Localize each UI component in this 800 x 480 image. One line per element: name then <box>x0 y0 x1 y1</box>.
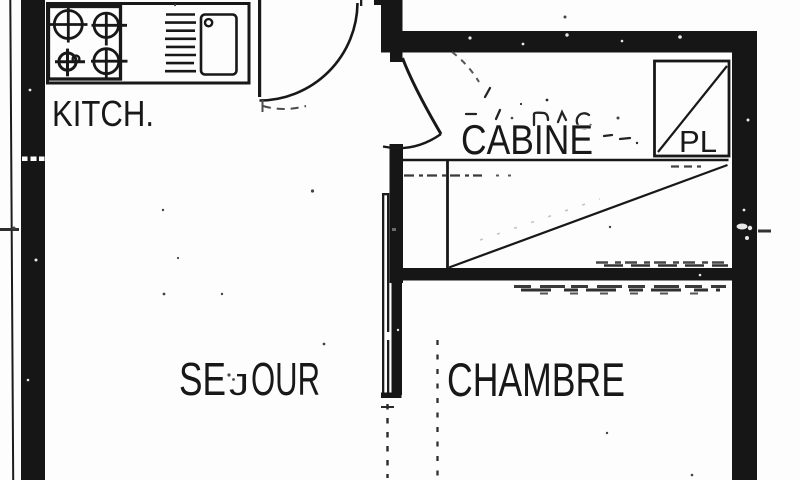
svg-text:OUR: OUR <box>251 353 320 405</box>
svg-text:J: J <box>229 367 249 402</box>
svg-text:CHAMBRE: CHAMBRE <box>447 353 625 406</box>
svg-text:PL: PL <box>679 124 717 159</box>
svg-text:SE: SE <box>179 353 226 405</box>
svg-text:KITCH.: KITCH. <box>52 93 154 134</box>
svg-text:CABINE: CABINE <box>461 116 593 163</box>
